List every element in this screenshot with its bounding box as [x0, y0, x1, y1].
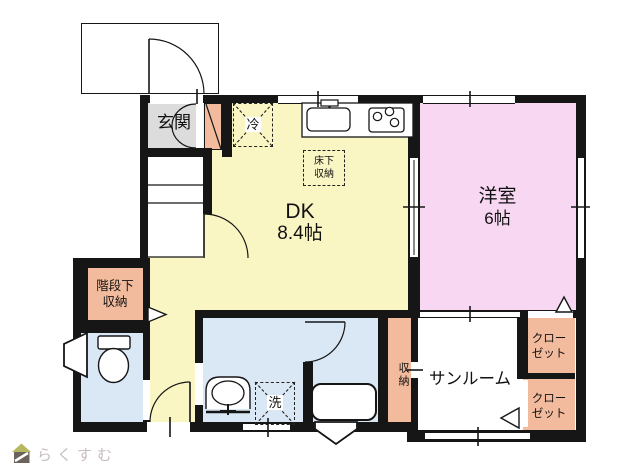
wall-lower-block-top [73, 258, 150, 268]
logo-text: らくすむ [37, 444, 117, 465]
wall-shoebox-right [222, 95, 232, 157]
window-western-right [577, 158, 585, 258]
wall-right [576, 95, 586, 442]
floorplan: 玄関 DK 8.4帖 洋室 6帖 冷 床下 収納 階段下 収納 洗 収納 サンル… [0, 0, 640, 469]
label-washing-machine: 洗 [264, 395, 286, 411]
wall-top [140, 95, 586, 103]
logo-house-icon [12, 444, 31, 464]
wall-left-upper [140, 95, 148, 268]
label-entrance: 玄関 [150, 113, 198, 133]
wall-closet-divider [517, 373, 575, 379]
window-sunroom-top [420, 311, 520, 318]
stairs [148, 157, 203, 257]
shoe-cabinet [204, 103, 222, 150]
label-western-room: 洋室 [455, 186, 540, 209]
label-dk: DK [260, 199, 340, 224]
sliding-door-dk-western [409, 158, 419, 257]
label-western-room-size: 6帖 [455, 209, 540, 229]
label-closet-upper: クロー ゼット [523, 332, 575, 361]
hallway-door-opening [147, 422, 190, 432]
washroom-door-opening [195, 363, 203, 405]
wall-entrance-bottom [140, 148, 212, 157]
label-dk-size: 8.4帖 [260, 223, 340, 246]
label-closet-lower: クロー ゼット [523, 392, 575, 421]
closet-upper-door-opening [528, 311, 573, 318]
wall-storage-bottom [73, 320, 150, 333]
wall-stairs-right [203, 148, 212, 214]
toilet-floor [81, 333, 143, 422]
window-sunroom-bottom [425, 432, 530, 440]
label-refrigerator: 冷 [243, 117, 263, 133]
window-dk-top [278, 95, 358, 104]
wall-bath-left [303, 362, 313, 425]
window-western-top [423, 95, 515, 104]
front-door-opening [150, 94, 203, 104]
label-underfloor-storage: 床下 収納 [303, 155, 345, 181]
label-storage: 収納 [391, 351, 409, 399]
label-sunroom: サンルーム [416, 370, 524, 390]
entrance-porch [81, 23, 219, 94]
label-under-stairs-storage: 階段下 収納 [86, 279, 144, 310]
wall-bath-right [378, 318, 388, 425]
bathroom-floor [303, 318, 378, 425]
wall-left-lower [73, 258, 81, 432]
toilet-door-opening [143, 380, 150, 420]
